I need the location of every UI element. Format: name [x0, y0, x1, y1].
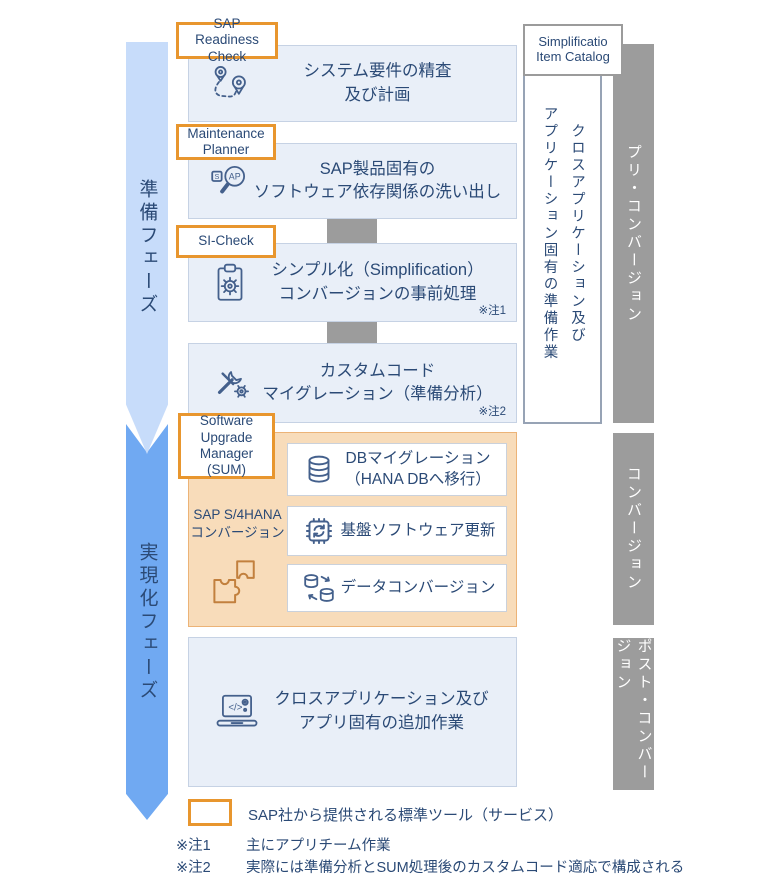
flow-box-text: シンプル化（Simplification） コンバージョンの事前処理 — [253, 259, 516, 305]
preparation-phase-arrow: 準備フェーズ — [126, 42, 168, 454]
si-check-label: SI-Check — [176, 225, 276, 258]
laptop-code-icon: </> — [211, 690, 263, 734]
simplification-item-catalog-label: Simplificatio Item Catalog — [523, 24, 623, 76]
realization-phase-arrow: 実現化フェーズ — [126, 424, 168, 820]
post-box-additional-work: </> クロスアプリケーション及び アプリ固有の追加作業 — [188, 637, 517, 787]
flow-connector — [327, 320, 377, 344]
flow-box-text: SAP製品固有の ソフトウェア依存関係の洗い出し — [253, 158, 516, 204]
post-box-text: クロスアプリケーション及び アプリ固有の追加作業 — [263, 688, 516, 736]
svg-text:AP: AP — [229, 172, 241, 182]
sap-conversion-diagram: 実現化フェーズ 準備フェーズ システム要件の精査 及び計画 — [0, 0, 780, 896]
pre-conversion-bar: プリ・コンバージョン — [613, 44, 654, 423]
footnote-1: ※注1 主にアプリチーム作業 — [176, 834, 391, 855]
conversion-box-db-migration: DBマイグレーション （HANA DBへ移行） — [287, 443, 507, 496]
software-upgrade-manager-label: Software Upgrade Manager (SUM) — [178, 413, 275, 479]
sap-readiness-check-label: SAP Readiness Check — [176, 22, 278, 59]
flow-box-text: カスタムコード マイグレーション（準備分析） — [253, 360, 516, 406]
conversion-box-data-conversion: データコンバージョン — [287, 564, 507, 612]
post-conversion-bar: ポスト・コンバージョン — [613, 638, 654, 790]
note-reference: ※注1 — [478, 302, 506, 318]
vertical-note-text: クロスアプリケーション及び アプリケーション固有の準備作業 — [535, 106, 590, 361]
svg-text:S: S — [214, 172, 219, 181]
flow-connector — [327, 218, 377, 244]
conversion-bar: コンバージョン — [613, 433, 654, 625]
conversion-box-text: データコンバージョン — [338, 578, 506, 598]
tools-icon — [207, 360, 253, 406]
conversion-box-text: DBマイグレーション （HANA DBへ移行） — [338, 449, 506, 489]
chip-refresh-icon — [300, 512, 338, 550]
flow-box-text: システム要件の精査 及び計画 — [253, 60, 516, 106]
legend-label: SAP社から提供される標準ツール（サービス） — [248, 804, 563, 825]
conversion-box-platform-update: 基盤ソフトウェア更新 — [287, 506, 507, 556]
preparation-work-vertical-note: クロスアプリケーション及び アプリケーション固有の準備作業 — [523, 43, 602, 424]
data-conversion-icon — [300, 569, 338, 607]
route-icon — [207, 61, 253, 107]
realization-phase-label: 実現化フェーズ — [134, 542, 161, 703]
database-icon — [300, 451, 338, 489]
conversion-box-text: 基盤ソフトウェア更新 — [338, 521, 506, 541]
svg-text:</>: </> — [228, 702, 242, 713]
flow-box-custom-code: カスタムコード マイグレーション（準備分析） ※注2 — [188, 343, 517, 423]
maintenance-planner-label: Maintenance Planner — [176, 124, 276, 160]
note-reference: ※注2 — [478, 403, 506, 419]
puzzle-icon — [203, 552, 261, 610]
conversion-side-label: SAP S/4HANA コンバージョン — [188, 506, 287, 542]
preparation-phase-label: 準備フェーズ — [134, 179, 161, 317]
clipboard-gear-icon — [207, 260, 253, 306]
footnote-2: ※注2 実際には準備分析とSUM処理後のカスタムコード適応で構成される — [176, 856, 684, 877]
sap-search-icon: S AP — [207, 158, 253, 204]
legend-orange-box — [188, 799, 232, 826]
